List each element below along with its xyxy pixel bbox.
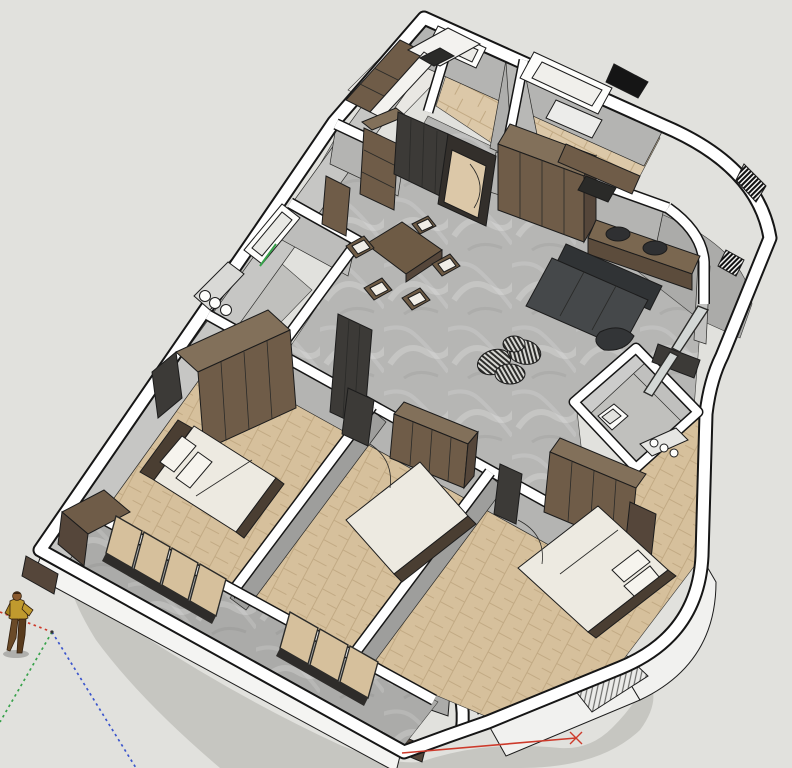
washbasin[interactable] <box>221 305 232 316</box>
floor-plan-model[interactable] <box>0 0 792 768</box>
washbasin[interactable] <box>200 291 211 302</box>
washbasin[interactable] <box>210 298 221 309</box>
washbasin[interactable] <box>670 449 678 457</box>
bar-stool[interactable] <box>643 241 667 255</box>
washbasin[interactable] <box>660 444 668 452</box>
axes-origin <box>50 630 53 633</box>
washbasin[interactable] <box>650 439 658 447</box>
sketchup-viewport[interactable] <box>0 0 792 768</box>
bar-stool[interactable] <box>606 227 630 241</box>
figure-shadow <box>3 650 29 658</box>
